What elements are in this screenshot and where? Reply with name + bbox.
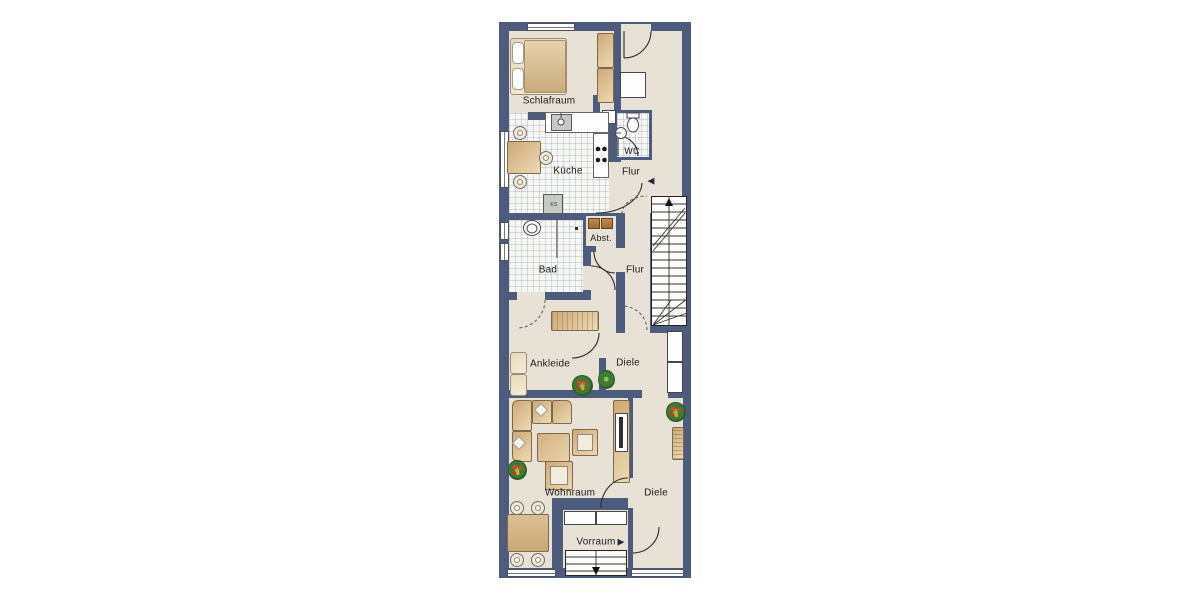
kitchen-sink [551,114,572,131]
flur-opening [616,248,625,272]
ankleide-shelf [551,311,599,331]
diele-lower-floor [633,398,683,568]
diele-passage-opening [642,390,668,398]
fridge-label: KS [550,202,557,207]
room-label-kueche: Küche [553,166,582,177]
tv-screen [619,417,623,448]
kitchen-counter-right [593,133,609,178]
entry-door-opening [621,24,651,31]
kitchen-chair-1 [513,126,527,140]
bad-door-opening [583,266,591,290]
dining-chair-4 [531,553,545,567]
sofa-corner-left-1 [512,400,532,431]
plant-diele-lower [666,402,686,422]
kitchen-chair-3 [539,151,553,165]
ankleide-diele-opening [599,333,606,358]
dining-chair-1 [510,501,524,515]
bad-floor [509,220,583,292]
window-schlafraum [527,23,575,31]
floor-plan-canvas: KS [0,0,1200,600]
kitchen-table [507,141,541,174]
staircase-vorraum [565,550,627,576]
abst-shelf-2 [601,218,613,229]
bed-pillow-2 [512,68,524,90]
staircase-main [651,196,687,326]
abst-shelf-1 [588,218,600,229]
room-label-ankleide: Ankleide [530,359,570,370]
dining-table [507,514,549,552]
room-label-wohnraum: Wohnraum [545,488,595,499]
entrance-arrow: ▶ [618,537,625,548]
room-label-wc: WC [624,146,639,156]
bed-pillow-1 [512,42,524,64]
window-bad-1 [500,222,509,240]
kitchen-chair-2 [513,175,527,189]
bed-blanket [524,40,566,93]
abst-wall-stub [586,246,596,252]
room-label-flur-mid: Flur [626,265,644,276]
fridge: KS [543,194,563,214]
diele-cabinet-1 [667,331,683,362]
plant-wohnraum [508,460,527,480]
room-label-flur-top: Flur [622,167,640,178]
vorraum-cabinet-1 [564,511,596,525]
room-label-diele-lower: Diele [644,488,668,499]
wardrobe-schlafraum-1 [597,33,614,68]
stairs-direction-arrow: ◀ [648,176,655,187]
dining-chair-3 [510,553,524,567]
dining-chair-2 [531,501,545,515]
room-label-schlafraum: Schlafraum [523,96,576,107]
room-label-diele-mid: Diele [616,358,640,369]
armchair-2 [545,461,573,490]
bad-ankleide-opening [517,292,545,300]
room-label-bad: Bad [539,265,557,276]
ankleide-wardrobe-2 [510,374,527,396]
diele-cabinet-2 [667,362,683,393]
coffee-table [537,433,570,462]
window-diele [631,569,684,577]
window-bad-2 [500,243,509,261]
plant-diele-mid [598,370,615,389]
ankleide-wardrobe-1 [510,352,527,374]
shaft-box [620,72,646,98]
vorraum-cabinet-2 [596,511,627,525]
room-label-abst: Abst. [590,233,612,243]
plant-ankleide [572,375,593,396]
diele-radiator [672,427,684,460]
armchair-1-cushion [577,434,593,451]
room-label-vorraum: Vorraum [576,537,615,548]
wardrobe-schlafraum-2 [597,68,614,103]
sofa-cushion-2 [552,400,572,424]
window-wohnraum [507,569,556,577]
armchair-2-cushion [550,466,568,485]
armchair-1 [572,429,598,456]
